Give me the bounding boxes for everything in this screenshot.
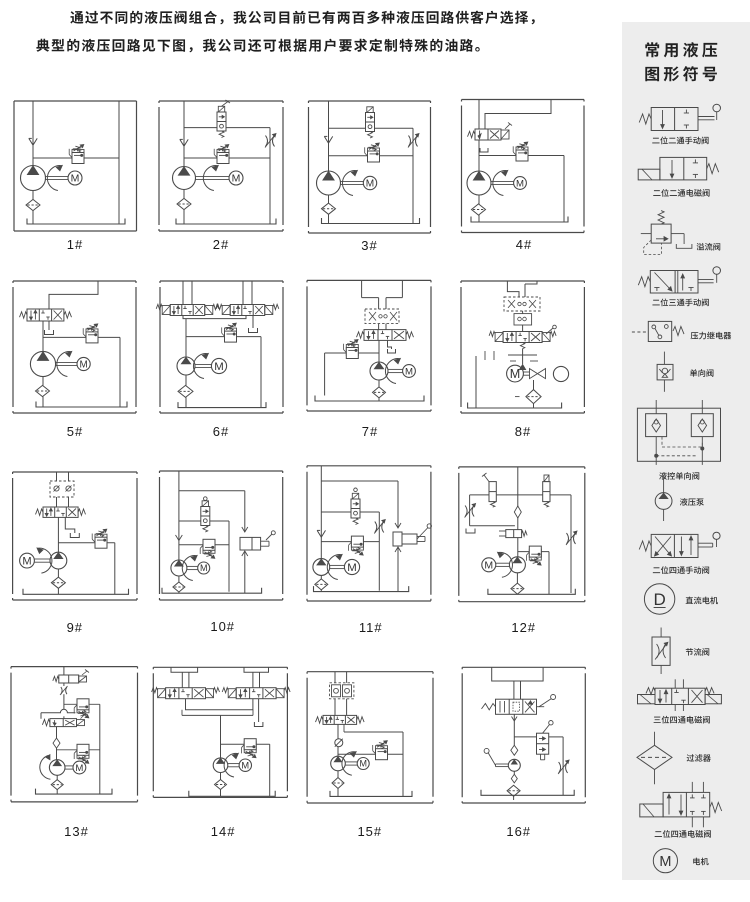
svg-text:M: M [347, 562, 357, 574]
svg-text:M: M [405, 366, 413, 377]
svg-text:M: M [241, 760, 249, 770]
svg-text:M: M [516, 178, 524, 189]
svg-text:M: M [484, 559, 493, 571]
svg-text:11#: 11# [359, 620, 383, 635]
svg-text:M: M [75, 763, 83, 774]
svg-text:4#: 4# [516, 237, 532, 252]
svg-text:M: M [510, 367, 521, 381]
svg-text:13#: 13# [64, 824, 89, 839]
svg-text:M: M [659, 854, 671, 870]
svg-text:M: M [79, 359, 87, 370]
svg-text:1#: 1# [67, 237, 83, 252]
svg-text:M: M [22, 555, 31, 567]
svg-text:9#: 9# [67, 620, 83, 635]
svg-text:D: D [653, 590, 665, 609]
svg-text:16#: 16# [506, 824, 531, 839]
svg-text:M: M [200, 563, 208, 573]
svg-text:2#: 2# [213, 237, 229, 252]
svg-text:8#: 8# [515, 424, 531, 439]
svg-text:3#: 3# [361, 238, 377, 253]
svg-text:14#: 14# [211, 824, 236, 839]
svg-text:12#: 12# [511, 620, 536, 635]
svg-text:10#: 10# [210, 619, 235, 634]
svg-text:M: M [71, 173, 80, 185]
svg-text:5#: 5# [67, 424, 83, 439]
svg-text:6#: 6# [213, 424, 229, 439]
svg-text:M: M [366, 179, 374, 190]
svg-text:M: M [232, 173, 241, 185]
svg-text:15#: 15# [357, 824, 382, 839]
svg-text:M: M [359, 759, 367, 769]
svg-text:M: M [214, 361, 224, 373]
svg-text:7#: 7# [362, 424, 378, 439]
